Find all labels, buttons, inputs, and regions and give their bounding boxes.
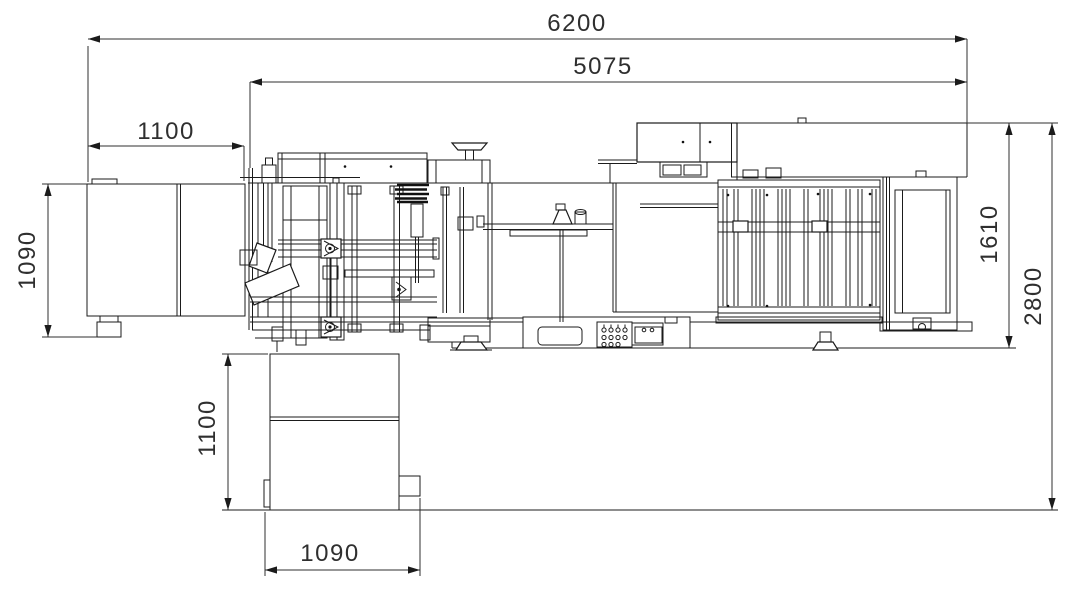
arrowhead — [224, 354, 231, 366]
drawing-primitive — [397, 288, 401, 292]
arrowhead — [224, 498, 231, 510]
arrowhead — [1005, 123, 1012, 135]
drawing-primitive — [635, 327, 662, 343]
drawing-primitive — [723, 189, 727, 306]
dim-label-left-unit-depth: 1090 — [14, 230, 41, 289]
drawing-primitive — [804, 189, 808, 306]
technical-drawing-page: 6200 5075 1100 1090 1610 2800 — [0, 0, 1086, 601]
panel-button — [616, 335, 620, 339]
drawing-primitive — [344, 165, 347, 168]
arrowhead — [1048, 498, 1055, 510]
bolt — [262, 165, 276, 183]
drawing-primitive — [718, 180, 880, 320]
arrowhead — [1048, 123, 1055, 135]
drawing-primitive — [477, 216, 484, 227]
bottom-auxiliary-unit — [264, 354, 420, 510]
injection-carriage — [428, 143, 490, 313]
arrowhead — [44, 325, 51, 337]
drawing-primitive — [682, 141, 685, 144]
cylinder — [411, 204, 423, 237]
arrowhead — [250, 78, 262, 85]
drawing-primitive — [869, 193, 872, 196]
unit-tab — [92, 179, 117, 184]
arrowhead — [44, 184, 51, 196]
panel-button — [642, 328, 646, 332]
drawing-primitive — [709, 141, 712, 144]
drawing-primitive — [328, 247, 331, 250]
panel-button — [616, 342, 620, 346]
rack-clip — [733, 221, 748, 232]
drawing-primitive — [734, 189, 738, 306]
dimension-left-unit-offset: 1100 — [88, 118, 244, 181]
panel-button — [623, 335, 627, 339]
arrowhead — [88, 35, 100, 42]
drawing-primitive — [510, 230, 587, 236]
panel-button — [650, 328, 654, 332]
control-panel — [523, 317, 690, 348]
drawing-primitive — [895, 190, 950, 313]
drawing-primitive — [760, 189, 764, 306]
machine-plan-drawing: 6200 5075 1100 1090 1610 2800 — [0, 0, 1086, 601]
drawing-primitive — [390, 324, 403, 332]
arrowhead — [408, 566, 420, 573]
dim-label-overall-depth: 2800 — [1020, 266, 1047, 325]
panel-button — [609, 335, 613, 339]
drawing-primitive — [283, 186, 327, 338]
drawing-primitive — [87, 184, 245, 316]
dimension-overall-length: 6200 — [88, 10, 967, 182]
machine-middle-section — [477, 160, 718, 322]
dim-label-bottom-unit-width: 1090 — [300, 540, 359, 567]
arrowhead — [88, 142, 100, 149]
panel-button — [609, 328, 613, 332]
rack-clip — [812, 221, 827, 232]
leveling-foot — [456, 342, 487, 350]
deck-tab — [798, 118, 806, 123]
arrowhead — [1005, 336, 1012, 348]
drawing-primitive — [820, 189, 824, 306]
panel-button — [609, 342, 613, 346]
drawing-primitive — [727, 305, 730, 308]
right-end-unit — [880, 171, 972, 331]
drawing-primitive — [464, 336, 478, 342]
unit-foot — [100, 316, 118, 322]
drawing-primitive — [858, 189, 862, 306]
panel-button — [616, 328, 620, 332]
drawing-primitive — [766, 305, 769, 308]
drawing-primitive — [817, 193, 820, 196]
drawing-primitive — [778, 189, 782, 306]
unit-foot — [264, 480, 270, 507]
dim-label-machine-length: 5075 — [573, 53, 632, 80]
clamping-unit — [240, 153, 439, 352]
unit-foot — [97, 322, 121, 337]
drawing-primitive — [348, 324, 361, 332]
drawing-primitive — [553, 210, 572, 224]
injection-arm — [477, 204, 613, 236]
drawing-primitive — [828, 189, 832, 306]
dimension-left-unit-depth: 1090 — [14, 184, 97, 337]
drawing-primitive — [820, 332, 831, 342]
hopper-unit — [637, 123, 737, 180]
drawing-primitive — [752, 189, 756, 306]
drawing-primitive — [433, 238, 439, 259]
robot-beam — [278, 153, 427, 183]
arrowhead — [955, 35, 967, 42]
dimension-bottom-unit-depth: 1100 — [194, 354, 268, 510]
drawing-primitive — [428, 160, 490, 183]
bolt-cap — [266, 158, 273, 165]
dim-label-bottom-unit-depth: 1100 — [194, 399, 221, 457]
dim-label-overall-length: 6200 — [547, 10, 606, 37]
drawing-primitive — [665, 317, 677, 323]
machine-deck — [248, 118, 967, 183]
arrowhead — [232, 142, 244, 149]
hand-knob — [452, 143, 487, 150]
drawing-primitive — [786, 189, 790, 306]
dimension-machine-length: 5075 — [250, 53, 967, 168]
drawing-primitive — [270, 354, 399, 510]
drawing-primitive — [727, 194, 730, 197]
drawing-primitive — [390, 165, 393, 168]
panel-button — [602, 328, 606, 332]
panel-button — [602, 335, 606, 339]
drawing-primitive — [348, 186, 361, 194]
knob-stem — [466, 150, 474, 160]
drawing-primitive — [278, 153, 427, 183]
drawing-primitive — [869, 304, 872, 307]
crossbar — [345, 270, 434, 277]
spring-stack — [395, 185, 429, 283]
drawing-primitive — [663, 165, 681, 175]
dimension-overall-depth: 2800 — [1020, 123, 1056, 510]
drawing-primitive — [684, 165, 701, 175]
drawing-primitive — [872, 189, 876, 306]
display-screen — [538, 327, 582, 345]
arrowhead — [955, 78, 967, 85]
leg — [272, 327, 283, 341]
drawing-primitive — [766, 194, 769, 197]
dim-label-machine-depth: 1610 — [976, 204, 1003, 263]
panel-button — [602, 342, 606, 346]
drawing-primitive — [637, 123, 737, 162]
panel-button — [623, 328, 627, 332]
arrowhead — [265, 566, 277, 573]
leveling-foot — [813, 342, 838, 350]
drawing-primitive — [333, 178, 339, 183]
drawing-primitive — [916, 171, 926, 177]
cooling-rack — [716, 168, 882, 323]
left-auxiliary-unit — [87, 179, 245, 337]
drawing-primitive — [632, 323, 663, 345]
drawing-primitive — [328, 325, 331, 328]
drawing-primitive — [441, 187, 449, 195]
dim-label-left-unit-offset: 1100 — [137, 118, 195, 145]
drawing-primitive — [846, 189, 850, 306]
drawing-primitive — [556, 204, 565, 210]
unit-foot — [399, 476, 420, 496]
